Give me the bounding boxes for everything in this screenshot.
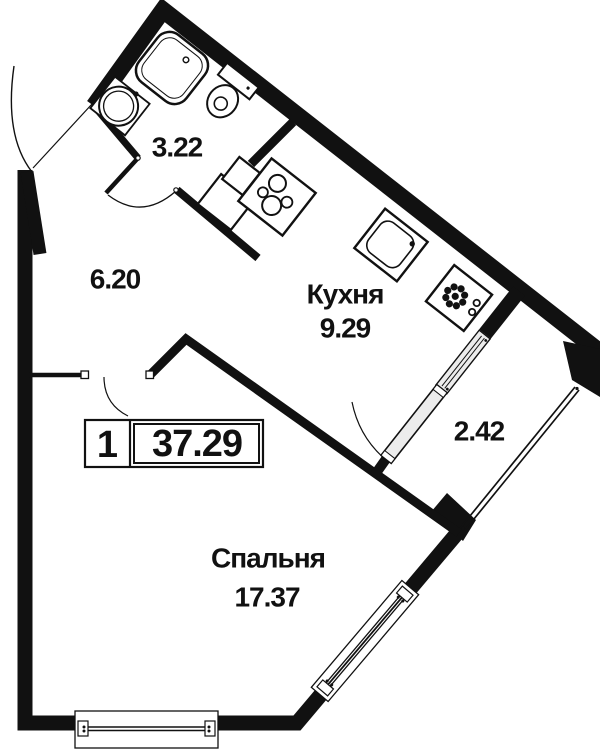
loggia-partition-bottom [374,459,386,476]
bedroom-area-label: 17.37 [234,582,299,613]
hallway-area-label: 6.20 [90,264,141,295]
total-area-label: 37.29 [152,423,242,465]
rooms-count-label: 1 [97,424,118,466]
door-jamb-dot [174,188,178,192]
bathroom-door-leaf [106,158,138,193]
bathroom-door [106,156,178,207]
door-jamb [81,371,89,379]
entrance-door-arc [11,66,32,172]
door-jamb-dot [136,156,140,160]
floor-plan-page: 3.22 6.20 Кухня 9.29 2.42 Спальня 17.37 … [0,0,600,753]
facade-window [75,711,218,748]
entrance-threshold [33,104,92,168]
washing-machine [426,265,492,331]
bathroom-door-arc [108,191,176,207]
loggia-area-label: 2.42 [454,416,505,447]
floor-plan: 3.22 6.20 Кухня 9.29 2.42 Спальня 17.37 … [0,0,600,753]
bedroom-door-arc [104,377,128,416]
kitchen-sink [354,209,427,282]
kitchen-name-label: Кухня [307,279,384,310]
loggia-door-arc [352,402,386,460]
bedroom-name-label: Спальня [211,543,325,574]
bathroom-area-label: 3.22 [152,132,203,163]
bedroom-door [81,371,154,416]
faucet-icon [133,91,138,96]
loggia-glazing [461,387,579,530]
unit-info-box: 1 37.29 [85,420,263,467]
loggia-door-leaf [381,385,447,464]
bedroom-window [311,580,418,701]
kitchen-area-label: 9.29 [320,313,371,344]
door-jamb [146,371,154,379]
loggia-corner-block [563,341,600,397]
